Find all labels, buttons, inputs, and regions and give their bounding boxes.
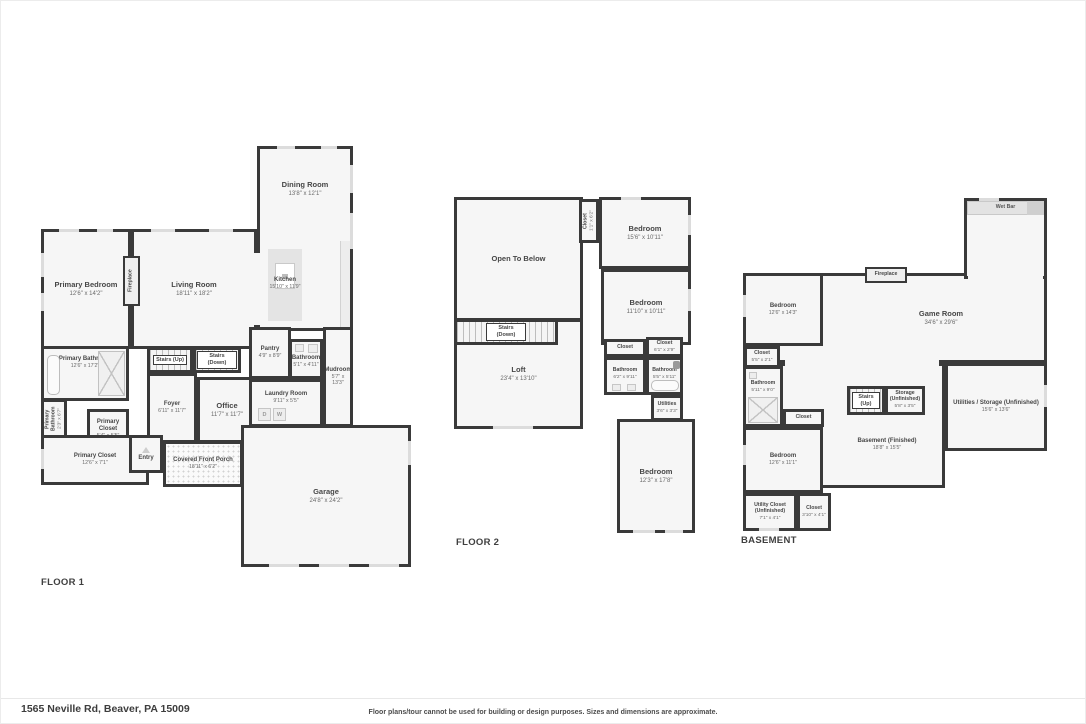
room-dims: 18'11" x 6'2" xyxy=(189,465,217,471)
room-dims: 18'11" x 18'2" xyxy=(176,291,212,298)
washer-icon: W xyxy=(273,408,286,421)
toilet-icon xyxy=(673,361,680,369)
window-marker xyxy=(369,564,399,567)
room-bedroom-2: Bedroom 12'6" x 11'1" xyxy=(743,427,823,493)
room-dims: 15'6" x 10'11" xyxy=(627,235,663,242)
room-name: Closet xyxy=(657,341,673,347)
room-entry: Entry xyxy=(129,435,163,473)
window-marker xyxy=(493,426,533,429)
room-dims: 6'11" x 11'7" xyxy=(158,409,186,415)
kitchen-counter xyxy=(340,241,350,329)
room-foyer: Foyer 6'11" x 11'7" xyxy=(147,373,197,443)
window-marker xyxy=(350,165,353,193)
room-pantry: Pantry 4'9" x 8'9" xyxy=(249,327,291,379)
basement-label: BASEMENT xyxy=(741,535,797,546)
bathtub-icon xyxy=(651,380,679,391)
window-marker xyxy=(743,445,746,465)
window-marker xyxy=(979,198,999,201)
room-closet-2: Closet xyxy=(604,339,646,357)
shower-icon xyxy=(748,397,778,423)
dryer-icon: D xyxy=(258,408,271,421)
wall-opening xyxy=(968,269,1043,281)
room-dims: 6'1" x 2'9" xyxy=(654,348,675,353)
sink-icon xyxy=(749,372,757,379)
stairs-label: Stairs (Down) xyxy=(486,323,526,341)
room-dims: 12'3" x 17'8" xyxy=(640,478,673,485)
room-dims: 23'4" x 13'10" xyxy=(500,376,536,383)
window-marker xyxy=(350,213,353,249)
room-name: Utilities / Storage (Unfinished) xyxy=(953,400,1039,407)
room-dims: 13'8" x 12'1" xyxy=(260,191,350,198)
window-marker xyxy=(209,229,233,232)
window-marker xyxy=(59,229,79,232)
room-dims: 6'2" x 9'11" xyxy=(613,375,636,380)
room-bedroom-2: Bedroom 11'10" x 10'11" xyxy=(601,269,691,345)
room-dims: 11'10" x 10'11" xyxy=(627,309,666,316)
room-kitchen: Kitchen 15'10" x 11'9" xyxy=(257,277,315,291)
room-laundry: Laundry Room 9'11" x 5'5" D W xyxy=(249,379,323,427)
window-marker xyxy=(41,293,44,311)
room-name: Primary Closet xyxy=(74,453,116,460)
room-name: Utilities xyxy=(658,402,677,408)
room-primary-bedroom: Primary Bedroom 12'6" x 14'2" xyxy=(41,229,131,349)
room-dims: 12'6" x 14'2" xyxy=(70,291,103,298)
window-marker xyxy=(688,289,691,311)
room-name: Fireplace xyxy=(875,272,898,278)
room-utilities-storage: Utilities / Storage (Unfinished) 15'6" x… xyxy=(945,363,1047,451)
fireplace-icon: Fireplace xyxy=(123,256,140,306)
room-name: Primary Bathroom xyxy=(45,402,57,436)
stairs-down: Stairs (Down) xyxy=(454,319,558,345)
room-game-room: Game Room 34'6" x 29'6" xyxy=(886,303,996,333)
room-name: Bedroom xyxy=(640,468,673,477)
window-marker xyxy=(319,564,349,567)
window-marker xyxy=(688,215,691,235)
floor1-plan: Dining Room 13'8" x 12'1" Kitchen 15'10"… xyxy=(39,141,413,593)
room-dims: 34'6" x 29'6" xyxy=(925,320,958,327)
toilet-icon xyxy=(308,344,318,353)
room-dims: 12'6" x 11'1" xyxy=(769,461,797,467)
room-dims: 5'5" x 2'1" xyxy=(752,358,773,363)
window-marker xyxy=(665,530,683,533)
room-name: Wet Bar xyxy=(996,205,1016,211)
room-closet-3: Closet 3'10" x 4'1" xyxy=(797,493,831,531)
stairs-label: Stairs (Down) xyxy=(197,351,237,369)
room-name: Closet xyxy=(617,345,633,351)
room-name: Open To Below xyxy=(491,255,545,264)
room-bedroom-1: Bedroom 15'6" x 10'11" xyxy=(599,197,691,269)
room-dims: 5'11" x 9'0" xyxy=(751,388,774,393)
room-name: Mudroom xyxy=(324,367,351,374)
basement-plan: Wet Bar Fireplace Bedroom 12'6" x 14'3" … xyxy=(739,195,1051,547)
room-dims: 2'3" x 6'7" xyxy=(57,409,62,430)
room-name: Living Room xyxy=(171,281,216,290)
room-name: Bedroom xyxy=(770,453,796,460)
room-dims: 3'10" x 4'1" xyxy=(802,513,826,518)
room-primary-bathroom-2: Primary Bathroom 2'3" x 6'7" xyxy=(41,399,67,439)
room-dims: 5'8" x 3'5" xyxy=(895,404,916,409)
window-marker xyxy=(621,197,641,200)
room-closet-1: Closet 5'5" x 2'1" xyxy=(744,346,780,368)
room-name: Closet xyxy=(806,506,822,512)
room-name: Pantry xyxy=(261,346,280,353)
room-closet-3: Closet 6'1" x 2'9" xyxy=(646,337,683,357)
room-dims: 5'1" x 4'11" xyxy=(293,363,318,369)
room-dims: 15'10" x 11'9" xyxy=(257,285,315,291)
room-basement-finished: Basement (Finished) 18'8" x 15'5" xyxy=(832,433,942,457)
room-name: Covered Front Porch xyxy=(173,457,233,464)
room-dims: 11'7" x 11'7" xyxy=(211,412,243,419)
room-name: Foyer xyxy=(164,401,180,408)
room-storage: Storage (Unfinished) 5'8" x 3'5" xyxy=(885,386,925,415)
room-name: Bathroom xyxy=(751,381,776,387)
wall-opening xyxy=(785,357,939,369)
room-dims: 12'6" x 17'2" xyxy=(71,364,99,370)
stairs-label: Stairs (Up) xyxy=(153,355,187,366)
window-marker xyxy=(759,528,779,531)
sink-icon xyxy=(612,384,621,391)
room-dims: 3'6" x 3'3" xyxy=(657,409,678,414)
room-utility-closet: Utility Closet (Unfinished) 7'1" x 4'1" xyxy=(743,493,797,531)
wall-opening xyxy=(253,253,263,325)
room-utilities: Utilities 3'6" x 3'3" xyxy=(651,395,683,421)
room-covered-front-porch: Covered Front Porch 18'11" x 6'2" xyxy=(163,441,243,487)
footer-divider xyxy=(1,698,1085,699)
room-dims: 7'1" x 4'1" xyxy=(760,516,781,521)
stairs-up: Stairs (Up) xyxy=(847,386,885,415)
room-dims: 12'6" x 14'3" xyxy=(769,311,797,317)
window-marker xyxy=(408,441,411,465)
room-closet-1: Closet 1'1" x 6'2" xyxy=(579,199,599,243)
fireplace-icon: Fireplace xyxy=(865,267,907,283)
room-bathroom-2: Bathroom 5'5" x 5'11" xyxy=(646,357,683,395)
disclaimer-text: Floor plans/tour cannot be used for buil… xyxy=(1,709,1085,716)
floor2-label: FLOOR 2 xyxy=(456,537,499,548)
room-dining-room: Dining Room 13'8" x 12'1" xyxy=(260,181,350,197)
room-dining-kitchen-area: Dining Room 13'8" x 12'1" Kitchen 15'10"… xyxy=(257,146,353,331)
window-marker xyxy=(277,146,295,149)
room-name: Game Room xyxy=(919,310,963,319)
room-open-to-below: Open To Below xyxy=(454,197,583,321)
window-marker xyxy=(633,530,655,533)
room-bedroom-3: Bedroom 12'3" x 17'8" xyxy=(617,419,695,533)
room-name: Bedroom xyxy=(770,303,796,310)
window-marker xyxy=(97,229,113,232)
window-marker xyxy=(269,564,299,567)
room-dims: 15'6" x 13'6" xyxy=(982,408,1010,414)
window-marker xyxy=(41,253,44,277)
room-name: Utility Closet (Unfinished) xyxy=(746,503,794,515)
room-name: Bathroom xyxy=(292,355,320,362)
room-name: Closet xyxy=(796,415,812,421)
sink-icon xyxy=(295,344,304,352)
room-name: Bathroom xyxy=(652,368,677,374)
room-dims: 24'8" x 24'2" xyxy=(310,498,343,505)
room-name: Closet xyxy=(754,351,770,357)
room-name: Kitchen xyxy=(257,277,315,284)
window-marker xyxy=(41,449,44,469)
room-garage: Garage 24'8" x 24'2" xyxy=(241,425,411,567)
floor2-plan: Open To Below Bedroom 15'6" x 10'11" Clo… xyxy=(451,193,701,551)
stairs-down: Stairs (Down) xyxy=(193,347,241,373)
window-marker xyxy=(151,229,175,232)
room-name: Bedroom xyxy=(630,299,663,308)
room-name: Dining Room xyxy=(260,181,350,190)
room-bathroom: Bathroom 5'11" x 9'0" xyxy=(743,366,783,427)
floorplan-page: Dining Room 13'8" x 12'1" Kitchen 15'10"… xyxy=(0,0,1086,724)
room-name: Laundry Room xyxy=(265,391,307,398)
room-name: Entry xyxy=(138,455,153,462)
room-living-room: Living Room 18'11" x 18'2" xyxy=(131,229,257,349)
sink-icon xyxy=(627,384,636,391)
room-mudroom: Mudroom 5'7" x 13'3" xyxy=(323,327,353,427)
window-marker xyxy=(1044,385,1047,407)
room-name: Fireplace xyxy=(129,270,135,293)
room-dims: 1'1" x 6'2" xyxy=(589,211,594,232)
entry-arrow-icon xyxy=(142,447,150,453)
room-name: Bathroom xyxy=(613,368,638,374)
room-dims: 12'6" x 7'1" xyxy=(82,461,108,467)
room-name: Garage xyxy=(313,488,339,497)
room-closet-2: Closet xyxy=(783,409,824,427)
bathtub-icon xyxy=(47,355,60,395)
room-dims: 4'9" x 8'9" xyxy=(259,354,282,360)
room-bathroom: Bathroom 5'1" x 4'11" xyxy=(289,339,323,379)
stairs-up: Stairs (Up) xyxy=(147,347,193,373)
room-dims: 18'8" x 15'5" xyxy=(873,446,901,452)
room-name: Primary Bedroom xyxy=(55,281,118,290)
room-name: Storage (Unfinished) xyxy=(888,391,922,403)
room-bedroom-1: Bedroom 12'6" x 14'3" xyxy=(743,273,823,346)
room-name: Office xyxy=(216,402,237,411)
room-bathroom-1: Bathroom 6'2" x 9'11" xyxy=(604,357,646,395)
room-primary-bathroom: Primary Bathroom 12'6" x 17'2" xyxy=(41,346,129,401)
room-name: Primary Closet xyxy=(90,419,126,433)
wet-bar-counter xyxy=(1027,201,1044,215)
window-marker xyxy=(321,146,337,149)
window-marker xyxy=(743,295,746,317)
shower-icon xyxy=(98,351,125,396)
room-name: Bedroom xyxy=(629,225,662,234)
room-name: Loft xyxy=(511,366,525,375)
stairs-label: Stairs (Up) xyxy=(852,392,880,410)
room-name: Basement (Finished) xyxy=(857,438,916,445)
floor1-label: FLOOR 1 xyxy=(41,577,84,588)
room-dims: 9'11" x 5'5" xyxy=(273,399,298,405)
room-dims: 5'7" x 13'3" xyxy=(326,375,350,386)
